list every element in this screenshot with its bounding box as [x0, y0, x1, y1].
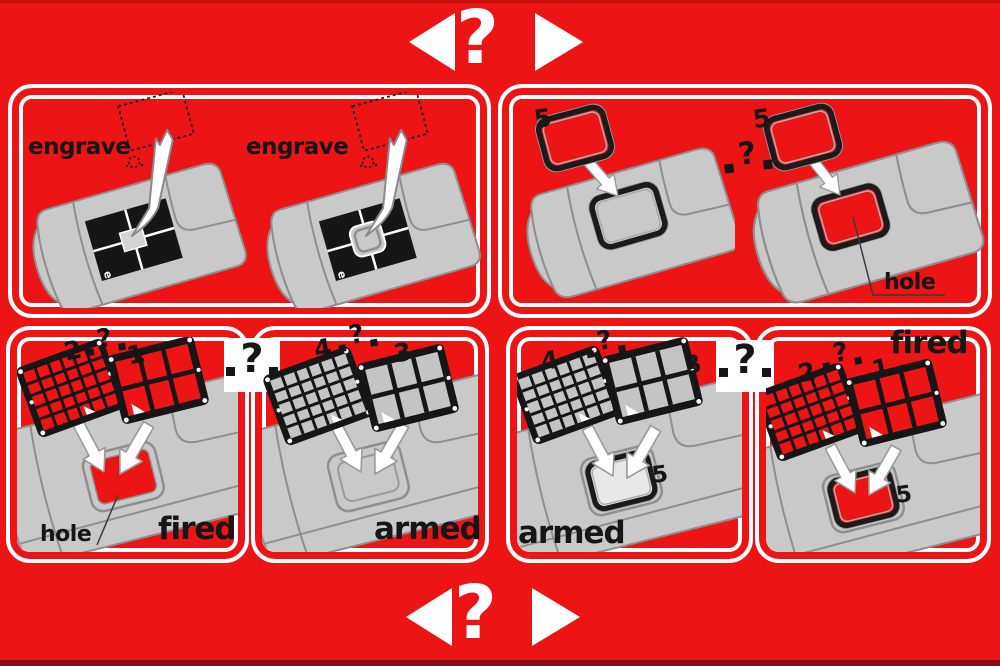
square-dot [86, 348, 94, 356]
part-number-5-left: 5 [532, 105, 552, 132]
square-dot [822, 362, 830, 370]
next-page-arrow-icon[interactable] [535, 13, 583, 71]
debris-specks [360, 157, 377, 168]
square-dot [338, 344, 346, 352]
question-mark: ? [737, 138, 758, 171]
state-label-armed: armed [518, 518, 625, 549]
square-dot [586, 350, 594, 358]
state-label-fired: fired [890, 328, 968, 359]
prev-page-arrow-icon[interactable] [406, 588, 452, 646]
question-mark-top: ? [456, 1, 499, 75]
next-page-arrow-icon[interactable] [532, 588, 580, 646]
square-dot [719, 368, 728, 377]
hole-label-bottom: hole [40, 524, 91, 546]
square-dot [226, 367, 235, 376]
prev-page-arrow-icon[interactable] [409, 13, 455, 71]
hole-label-top: hole [884, 272, 935, 294]
part-number-5: 5 [894, 483, 913, 508]
square-dot [618, 344, 626, 352]
engrave-left-label: engrave [28, 136, 130, 159]
engrave-right-label: engrave [246, 136, 348, 159]
engrave-right-illustration: e [250, 92, 482, 308]
state-label-fired: fired [158, 514, 236, 545]
square-dot [370, 338, 378, 346]
frame-part-floating [761, 101, 845, 174]
question-mark-bottom: ? [454, 576, 497, 650]
bottom-edge-strip [0, 660, 1000, 666]
frame-over-hole-illustration [737, 90, 988, 308]
option-question-divider: ? [723, 144, 774, 180]
square-dot [854, 356, 862, 364]
question-mark: ? [240, 339, 263, 379]
question-mark: ? [733, 340, 756, 380]
square-dot [724, 164, 734, 174]
square-dot [763, 159, 773, 169]
top-edge-strip [0, 0, 1000, 3]
part-number-5: 5 [650, 463, 669, 488]
instruction-sheet: ? e engrave e engrave [0, 0, 1000, 666]
part-number-5-right: 5 [751, 105, 771, 132]
state-label-armed: armed [374, 514, 481, 545]
engrave-left-illustration: e [16, 92, 248, 308]
